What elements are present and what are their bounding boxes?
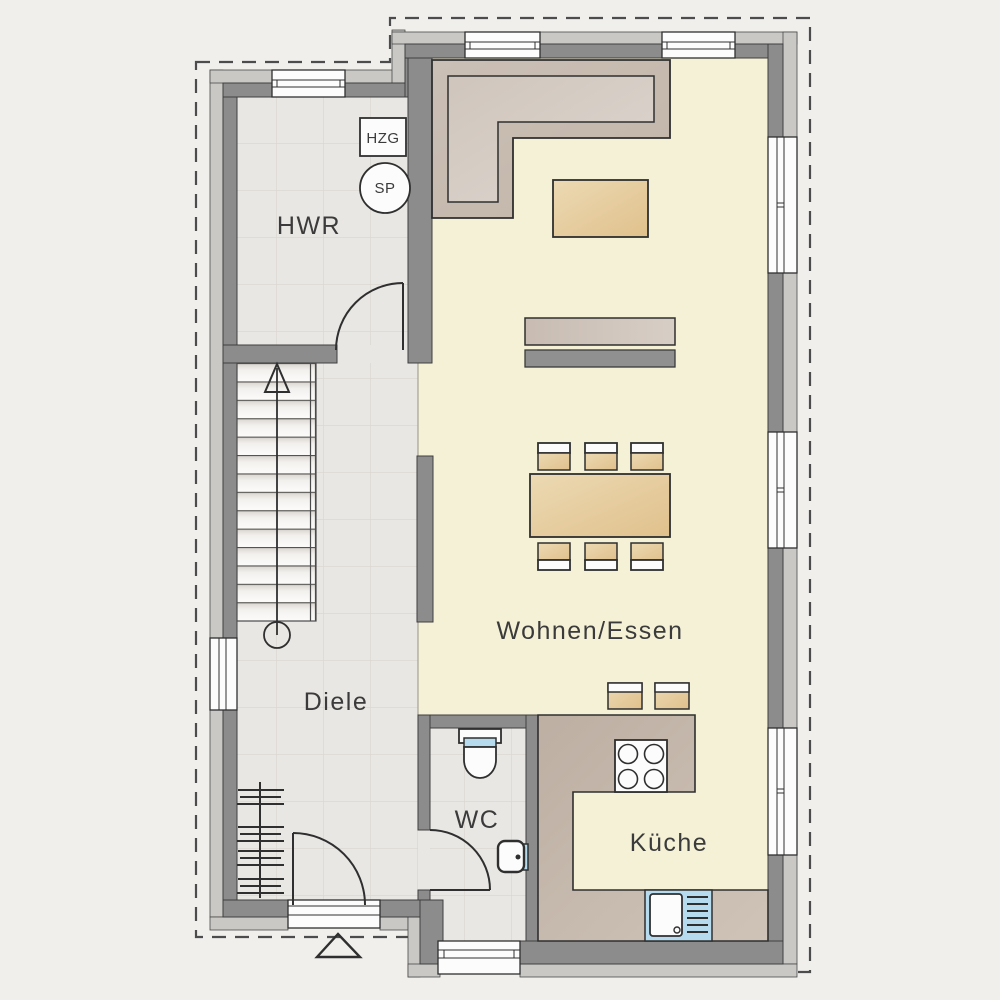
window-left bbox=[210, 638, 237, 710]
window-top-2 bbox=[662, 32, 735, 58]
bar-stool bbox=[608, 683, 642, 709]
staircase bbox=[237, 363, 316, 648]
dining-set bbox=[530, 443, 670, 570]
dining-table bbox=[530, 474, 670, 537]
wall-wc-left-upper bbox=[418, 715, 430, 830]
room-label-diele: Diele bbox=[304, 688, 368, 716]
wall-hwr-top-left bbox=[223, 83, 272, 97]
room-label-hwr: HWR bbox=[277, 212, 341, 240]
kitchen-sink-icon bbox=[645, 890, 712, 941]
stove-icon bbox=[615, 740, 667, 792]
hand-basin-icon bbox=[498, 841, 528, 872]
window-right-1 bbox=[768, 137, 797, 273]
coffee-table bbox=[553, 180, 648, 237]
wall-divider-stub bbox=[417, 456, 433, 622]
tv-board bbox=[525, 350, 675, 367]
wall-top-1 bbox=[405, 44, 465, 58]
wall-wc-right bbox=[526, 715, 538, 941]
wall-bottom-left-2 bbox=[380, 900, 420, 917]
wall-wc-top bbox=[418, 715, 538, 728]
wall-top-pier bbox=[540, 44, 662, 58]
window-right-3 bbox=[768, 728, 797, 855]
room-label-wohnen-essen: Wohnen/Essen bbox=[496, 617, 683, 645]
window-wc-bottom bbox=[438, 941, 520, 974]
bar-stool bbox=[655, 683, 689, 709]
wall-left-lower bbox=[223, 710, 237, 917]
wall-bottom-right bbox=[520, 941, 783, 964]
dining-chair bbox=[538, 443, 570, 470]
dining-chair bbox=[631, 543, 663, 570]
wall-stair-top bbox=[223, 345, 337, 363]
dining-chair bbox=[538, 543, 570, 570]
window-hwr-top bbox=[272, 70, 345, 97]
floor-plan-drawing: HZG SP HWR Diele WC Küche Wohnen/Essen bbox=[0, 0, 1000, 1000]
wall-bottom-left-1 bbox=[223, 900, 288, 917]
wall-right-2 bbox=[768, 273, 783, 432]
heating-unit-label: HZG bbox=[366, 130, 399, 147]
room-label-wc: WC bbox=[455, 806, 500, 834]
wall-right-1 bbox=[768, 44, 783, 137]
sideboard bbox=[525, 318, 675, 345]
wall-hwr-right bbox=[408, 58, 432, 363]
entrance-threshold bbox=[288, 900, 380, 928]
dining-chair bbox=[585, 443, 617, 470]
boiler-label: SP bbox=[374, 180, 395, 197]
window-top-1 bbox=[465, 32, 540, 58]
room-label-kueche: Küche bbox=[630, 829, 708, 857]
floor-plan-page: HZG SP HWR Diele WC Küche Wohnen/Essen bbox=[0, 0, 1000, 1000]
dining-chair bbox=[631, 443, 663, 470]
wall-right-3 bbox=[768, 548, 783, 728]
dining-chair bbox=[585, 543, 617, 570]
window-right-2 bbox=[768, 432, 797, 548]
